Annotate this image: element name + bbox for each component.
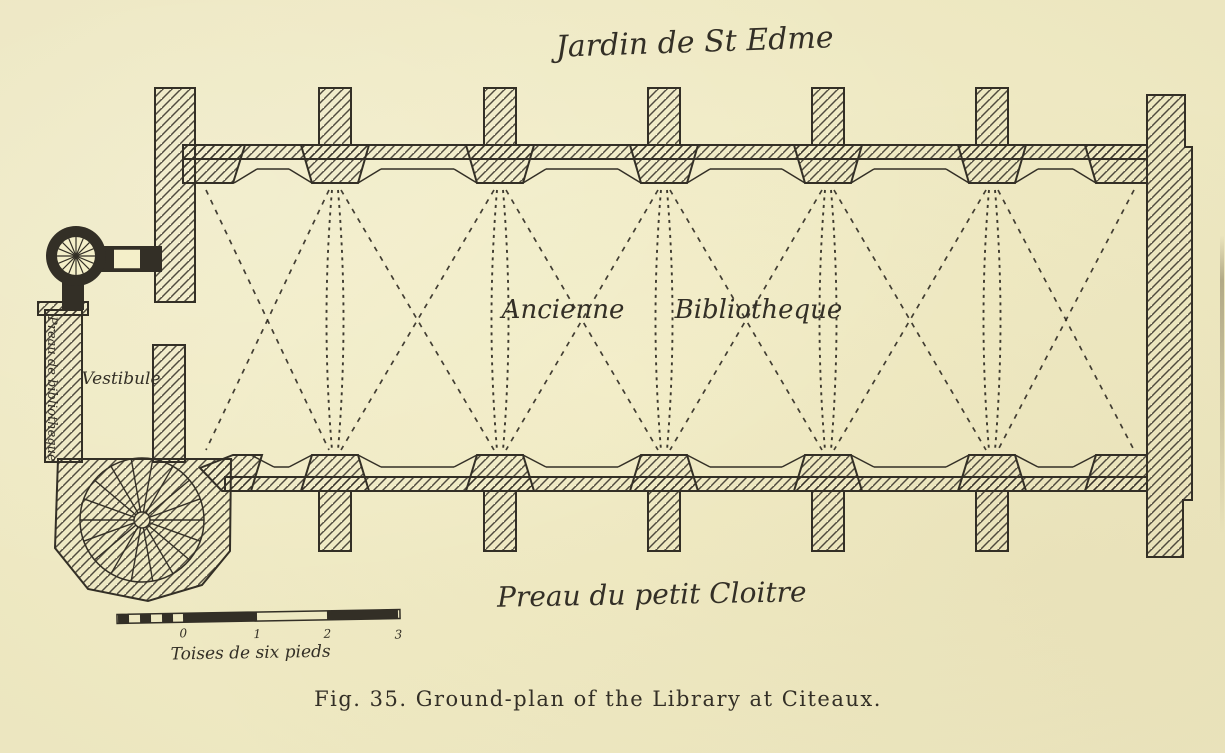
west-wall-lower	[153, 345, 185, 462]
spiral-staircase-large	[55, 458, 231, 601]
scale-tick-3: 3	[394, 627, 402, 641]
northeast-corner	[1085, 145, 1147, 183]
scanned-book-page: 0 1 2 3 Toises de six pieds Jardin de St…	[0, 0, 1225, 753]
library-label: Ancienne Bibliotheque	[500, 295, 843, 325]
pier	[958, 455, 1026, 491]
buttress-south	[319, 491, 351, 551]
scale-tick-2: 2	[322, 627, 331, 641]
pier	[630, 455, 698, 491]
buttress-north	[976, 88, 1008, 145]
pier	[794, 455, 862, 491]
spiral-staircase-small	[46, 226, 162, 310]
cloister-label: Preau du petit Cloitre	[496, 575, 807, 613]
pier	[301, 145, 369, 183]
scale-unit-label: Toises de six pieds	[170, 642, 331, 665]
vestibule-label: Vestibule	[81, 369, 160, 389]
buttress-south	[648, 491, 680, 551]
figure-caption: Fig. 35. Ground-plan of the Library at C…	[314, 687, 882, 711]
buttress-north	[648, 88, 680, 145]
ground-plan-drawing: 0 1 2 3 Toises de six pieds Jardin de St…	[0, 0, 1225, 753]
buttress-south	[484, 491, 516, 551]
pier	[630, 145, 698, 183]
pier	[466, 455, 534, 491]
passage-label: Preau de bibliotheque	[44, 315, 59, 462]
northwest-corner	[183, 145, 245, 183]
southeast-corner	[1085, 455, 1147, 491]
scale-tick-1: 1	[253, 627, 261, 641]
buttress-north	[484, 88, 516, 145]
pier	[466, 145, 534, 183]
buttress-south	[812, 491, 844, 551]
pier	[794, 145, 862, 183]
pier	[301, 455, 369, 491]
corridor-window	[114, 249, 140, 269]
scale-tick-0: 0	[179, 626, 187, 640]
buttress-north	[812, 88, 844, 145]
garden-label: Jardin de St Edme	[549, 20, 834, 65]
east-wall	[1147, 95, 1192, 557]
buttress-north	[319, 88, 351, 145]
pier	[958, 145, 1026, 183]
buttress-south	[976, 491, 1008, 551]
scale-bar: 0 1 2 3 Toises de six pieds	[117, 609, 403, 665]
